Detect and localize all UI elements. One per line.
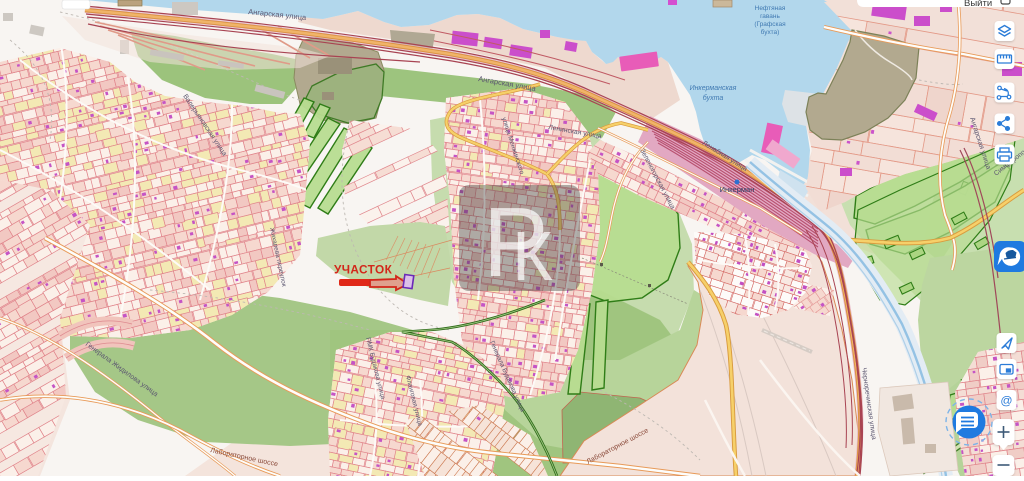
svg-text:Нефтяная: Нефтяная	[755, 5, 786, 12]
svg-text:Выйти: Выйти	[964, 0, 992, 9]
svg-text:(Графская: (Графская	[754, 21, 786, 28]
svg-text:бухта: бухта	[703, 94, 724, 102]
svg-text:бухта): бухта)	[761, 28, 780, 36]
svg-text:Инкерман: Инкерман	[720, 185, 755, 194]
svg-text:К: К	[512, 217, 553, 295]
svg-text:Инкерманская: Инкерманская	[690, 85, 737, 92]
svg-text:УЧАСТОК: УЧАСТОК	[334, 263, 393, 277]
svg-text:@: @	[1000, 394, 1012, 408]
svg-text:гавань: гавань	[760, 13, 780, 20]
